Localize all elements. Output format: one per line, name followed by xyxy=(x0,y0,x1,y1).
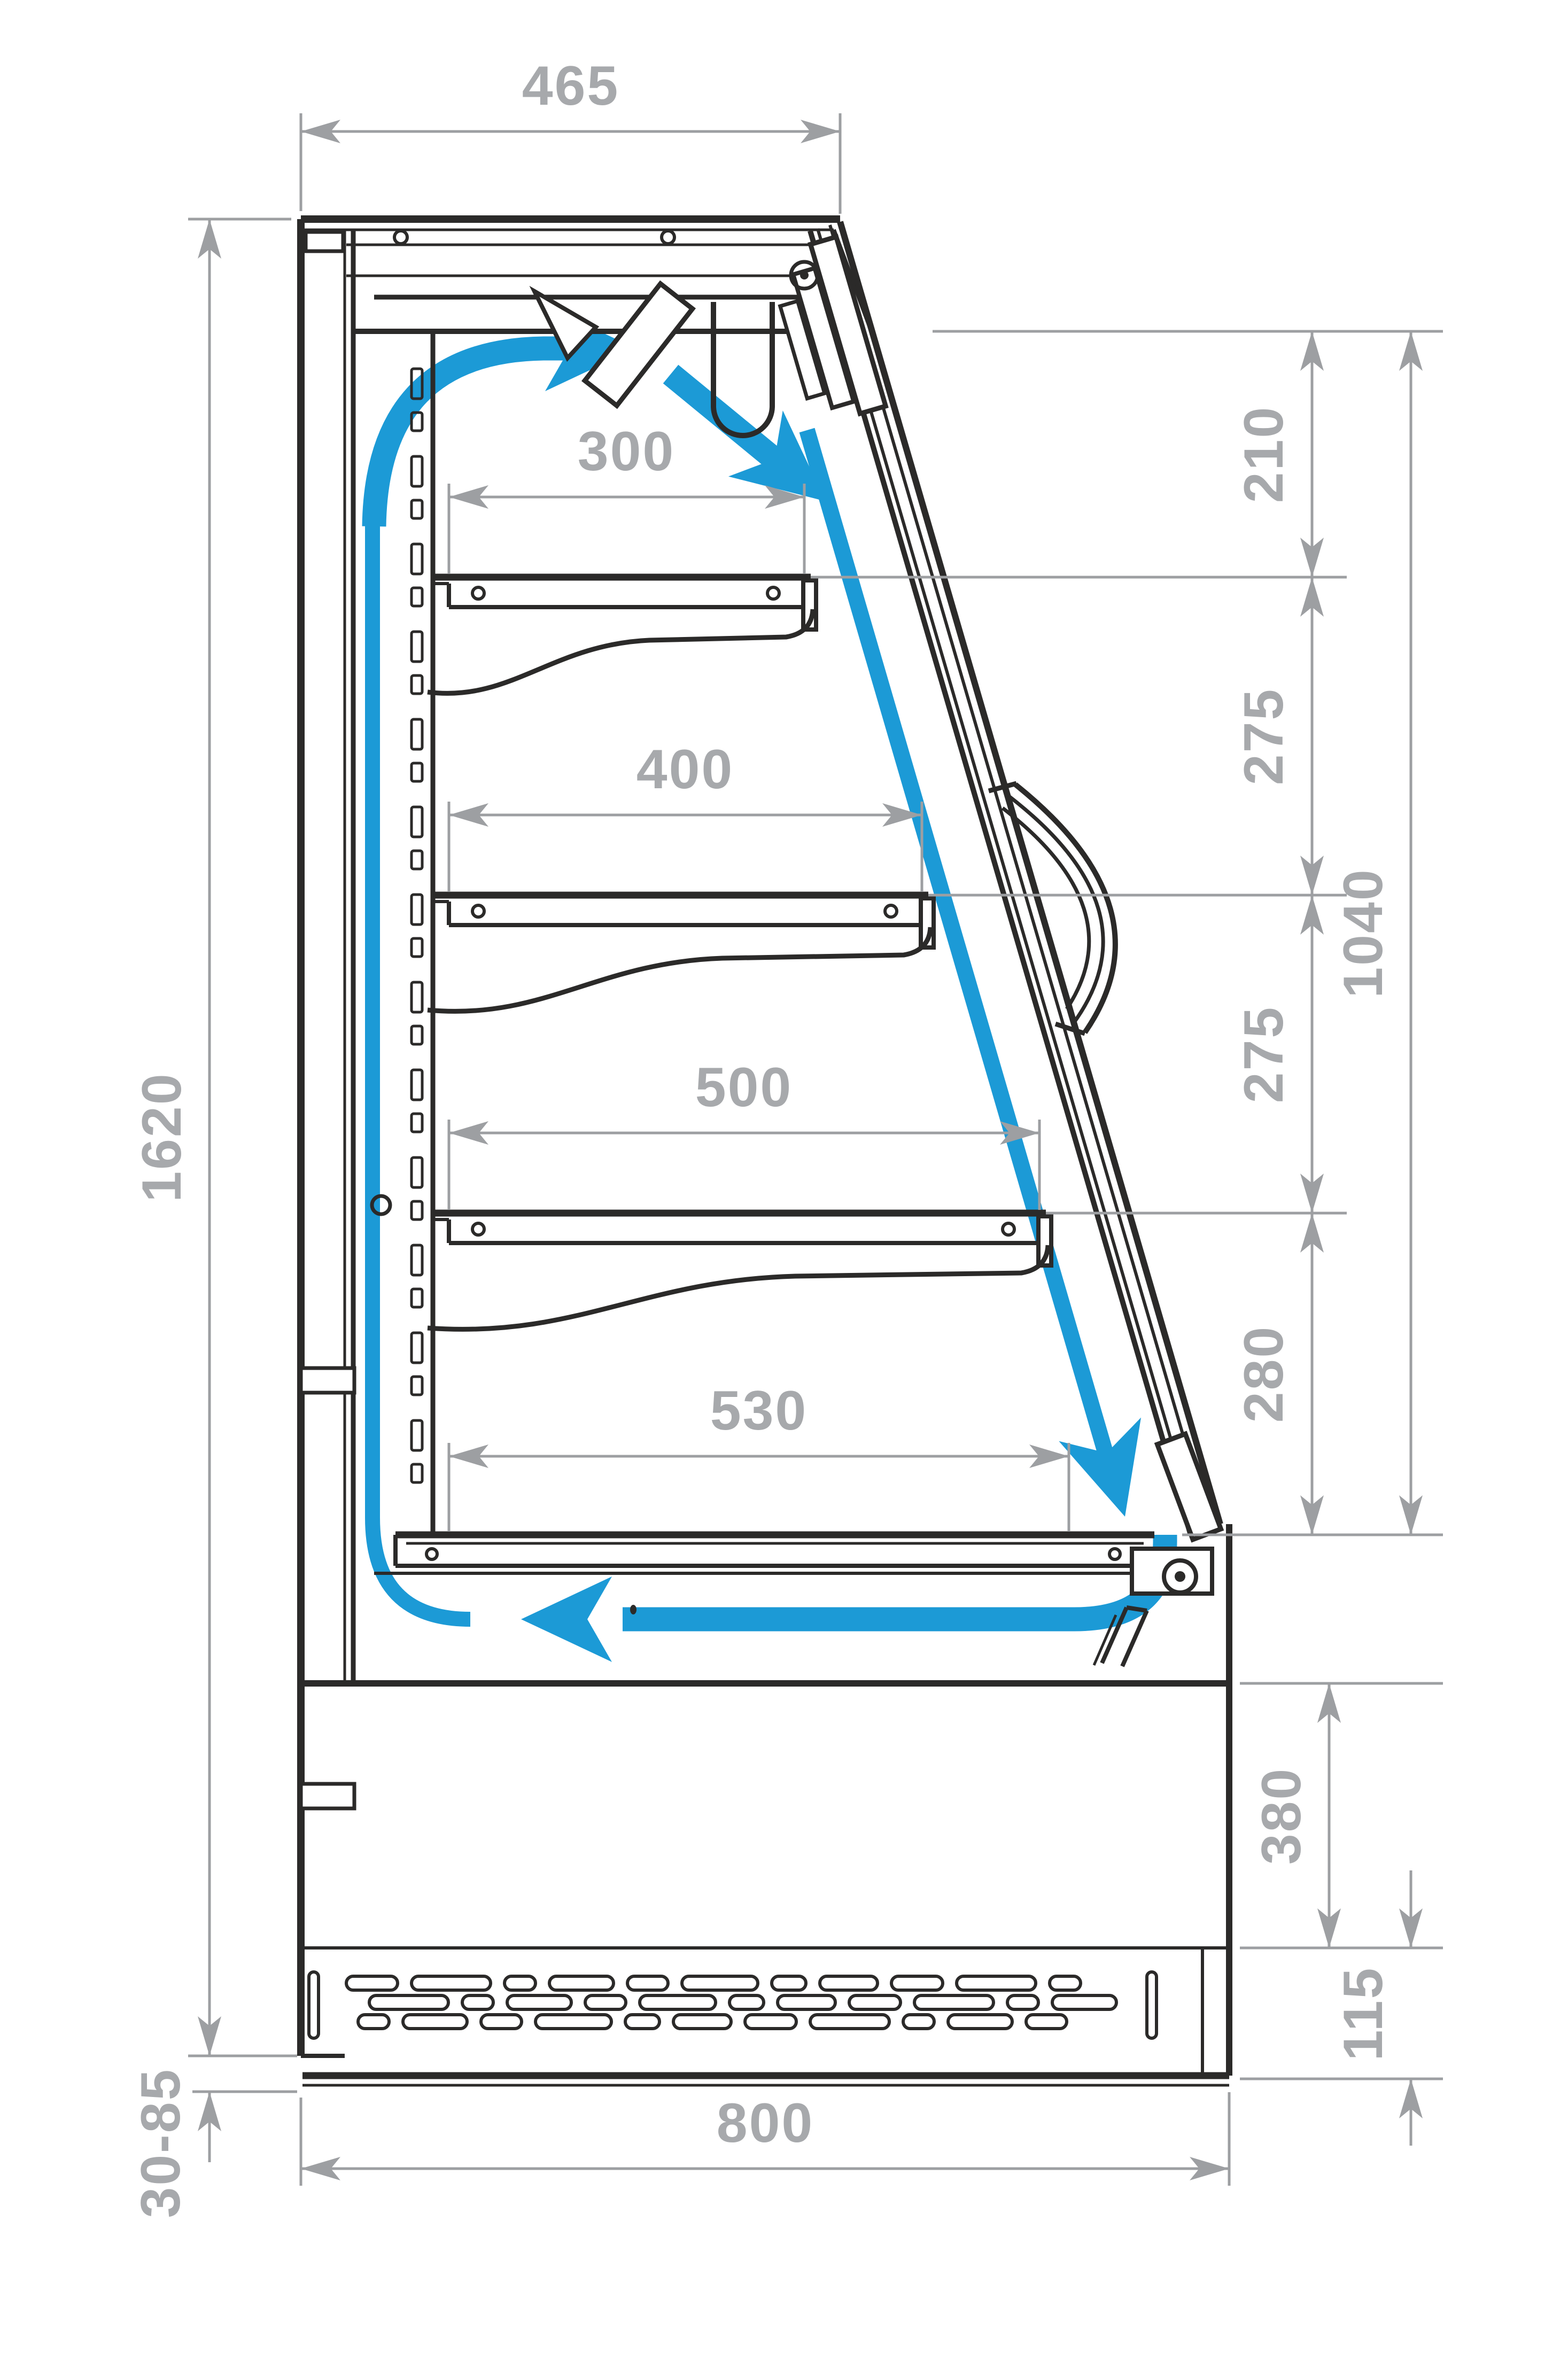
dim-label-400: 400 xyxy=(636,739,734,801)
dim-adjustable-feet: 30-85 xyxy=(130,2056,297,2218)
refrigerated-display-case-section-drawing: 465 1620 210 275 xyxy=(0,0,1568,2361)
shelf-3 xyxy=(428,1213,1051,1329)
airflow-into-case-arrow xyxy=(671,374,781,465)
sill-lock-detail xyxy=(1094,1434,1229,2076)
dim-label-1040: 1040 xyxy=(1332,868,1394,998)
dim-label-530: 530 xyxy=(710,1380,808,1442)
dim-shelf-spacing-chain: 210 275 275 280 xyxy=(1233,331,1324,1535)
airflow-return-arrow xyxy=(623,1535,1165,1619)
dim-label-280: 280 xyxy=(1233,1325,1295,1423)
shelf-2 xyxy=(428,895,934,1011)
dim-label-1620: 1620 xyxy=(131,1072,193,1202)
dim-label-300: 300 xyxy=(578,421,676,483)
dim-label-500: 500 xyxy=(695,1057,793,1119)
dim-label-30-85: 30-85 xyxy=(130,2068,192,2218)
dim-top-width: 465 xyxy=(301,55,840,214)
dim-bottom-deck-depth: 530 xyxy=(449,1380,1069,1532)
dim-shelf-depth-3: 500 xyxy=(449,1057,1039,1210)
vent-grille xyxy=(309,1972,1156,2038)
dimensions: 465 1620 210 275 xyxy=(130,55,1443,2218)
dim-label-465: 465 xyxy=(522,55,620,117)
glass-door xyxy=(766,222,1220,1533)
dim-front-opening: 1040 xyxy=(1332,331,1423,1535)
airflow-return-arrowhead xyxy=(521,1576,612,1662)
dim-label-800: 800 xyxy=(717,2092,814,2154)
dim-label-275b: 275 xyxy=(1233,1006,1295,1104)
dim-base-front: 380 xyxy=(1240,1683,1443,1948)
cabinet-section xyxy=(301,219,1229,2085)
dim-label-380: 380 xyxy=(1251,1767,1313,1865)
wall-bracket xyxy=(301,1784,354,1808)
shelf-1 xyxy=(428,577,816,693)
dim-overall-height: 1620 xyxy=(131,219,291,2056)
wall-bracket xyxy=(301,1368,354,1393)
dim-vent-grille: 115 xyxy=(1240,1870,1443,2146)
drawing-canvas: 465 1620 210 275 xyxy=(0,0,1568,2361)
dim-label-210: 210 xyxy=(1233,406,1295,503)
airflow-air-curtain-arrowhead xyxy=(1059,1418,1166,1529)
dim-label-275a: 275 xyxy=(1233,688,1295,786)
dim-shelf-depth-2: 400 xyxy=(449,739,922,892)
left-wall xyxy=(301,219,354,2056)
grille-end-slot xyxy=(1147,1972,1156,2038)
dim-total-depth: 800 xyxy=(301,2092,1229,2186)
grille-end-slot xyxy=(309,1972,319,2038)
bottom-deck xyxy=(374,1535,1192,1614)
base-plinth xyxy=(301,1683,1229,2085)
dim-label-115: 115 xyxy=(1332,1967,1394,2061)
